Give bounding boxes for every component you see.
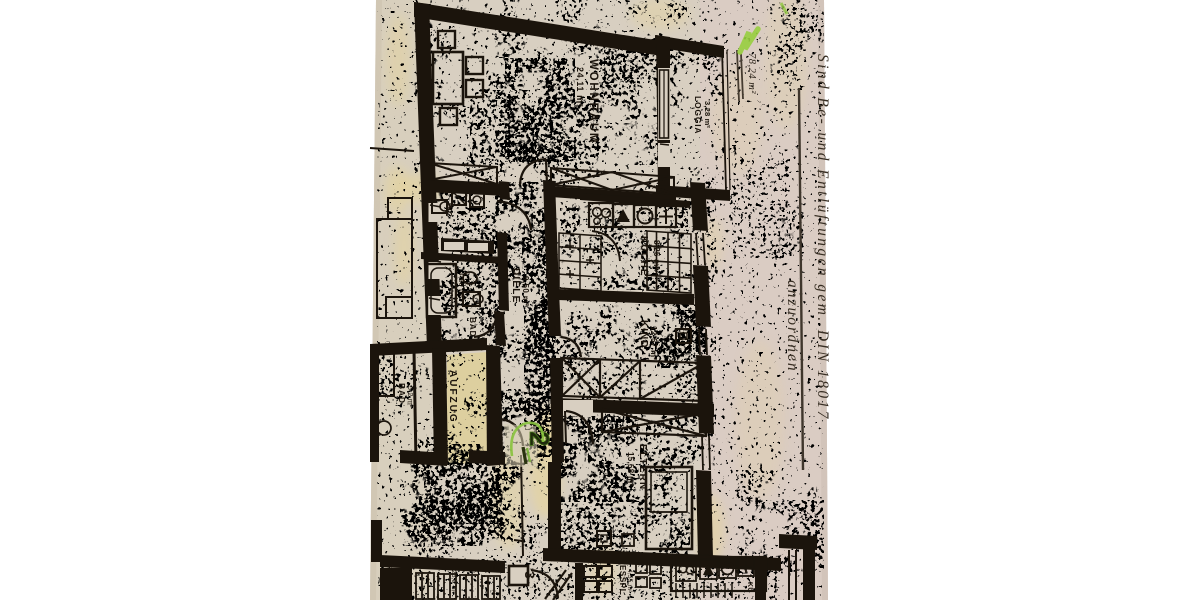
svg-text:2: 2 xyxy=(524,431,555,447)
svg-text:9,50 m²: 9,50 m² xyxy=(521,276,530,306)
svg-text:Sind Be- und Entlüftungen gem.: Sind Be- und Entlüftungen gem. DIN 18017 xyxy=(814,54,831,421)
svg-text:BAD: BAD xyxy=(397,383,407,404)
svg-text:4,55 m²: 4,55 m² xyxy=(626,569,633,593)
svg-text:LOGGIA: LOGGIA xyxy=(693,96,703,134)
svg-text:anzuordnen: anzuordnen xyxy=(784,280,801,373)
svg-text:AUFZUG: AUFZUG xyxy=(447,370,458,424)
svg-text:KÜ: KÜ xyxy=(746,582,755,593)
svg-text:5,2 m²: 5,2 m² xyxy=(406,386,413,408)
svg-text:3: 3 xyxy=(522,571,538,579)
svg-text:BAD: BAD xyxy=(468,317,478,337)
svg-text:WOHNRAUM: WOHNRAUM xyxy=(587,59,599,144)
svg-text:24,11 m²: 24,11 m² xyxy=(575,67,585,107)
svg-text:KIND: KIND xyxy=(638,320,649,348)
svg-text:15,58 m²: 15,58 m² xyxy=(626,452,635,486)
svg-text:KÜCHE: KÜCHE xyxy=(638,236,651,277)
svg-text:3,28 m²: 3,28 m² xyxy=(703,101,712,129)
svg-text:12,57 m²: 12,57 m² xyxy=(649,326,658,360)
svg-text:78,24 m²: 78,24 m² xyxy=(746,53,757,94)
svg-text:23,0 m²: 23,0 m² xyxy=(450,570,457,594)
svg-text:DIELE: DIELE xyxy=(510,268,521,303)
svg-text:ESSPL: ESSPL xyxy=(618,565,627,594)
